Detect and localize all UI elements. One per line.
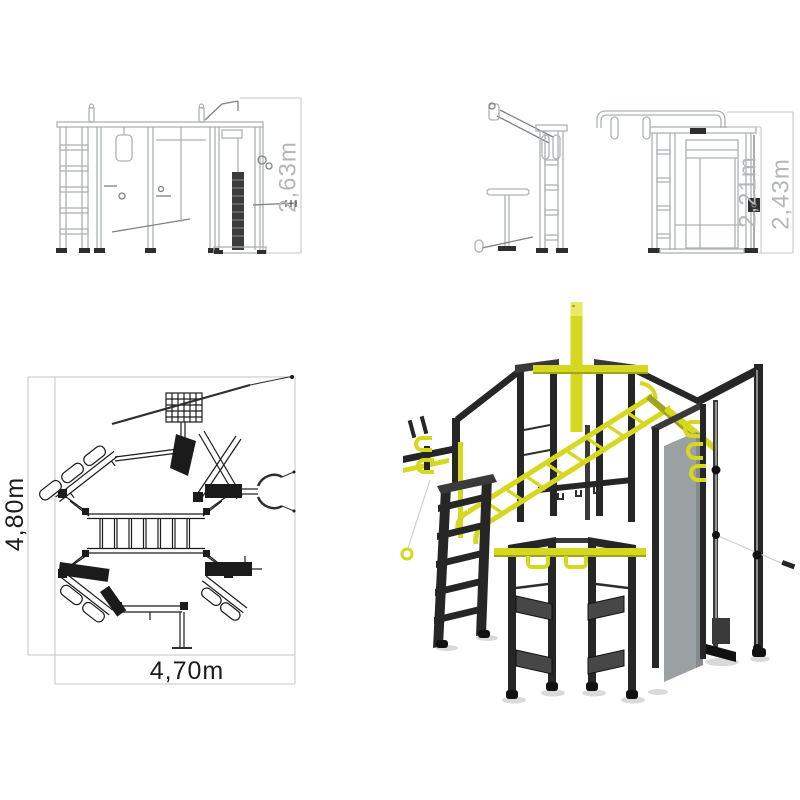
plan-bench-upper-left <box>38 440 122 513</box>
dimension-plan-width: 4,70m <box>55 655 295 685</box>
iso-render-view <box>402 302 795 704</box>
plan-view: 4,80m 4,70m <box>1 375 296 685</box>
cable-handle <box>402 549 412 559</box>
arch-pullup-bar <box>597 111 725 139</box>
ladder-front <box>60 127 88 250</box>
dimension-plan-depth: 4,80m <box>1 377 55 655</box>
dimension-front-height: 2,63m <box>240 98 302 253</box>
display-panel <box>690 128 706 134</box>
technical-drawing-canvas: 2,63m <box>0 0 800 800</box>
side-elevation-view: 2,21m 2,43m <box>475 103 795 253</box>
front-elevation-view: 2,63m <box>56 98 302 254</box>
plan-seat-wedge <box>170 434 196 476</box>
left-ladder-tower <box>433 474 497 648</box>
dimension-label-plan-width: 4,70m <box>150 657 224 685</box>
press-station-side <box>475 103 568 253</box>
plan-bench-lower-right <box>195 556 262 622</box>
dimension-side-inner: 2,21m <box>728 127 762 253</box>
step-platform <box>516 596 552 620</box>
top-posts <box>89 101 238 122</box>
weight-stack <box>232 172 244 250</box>
top-crossbar <box>533 365 648 372</box>
dimension-label-plan-depth: 4,80m <box>1 477 29 551</box>
plan-barbell <box>112 385 250 424</box>
front-towers <box>494 537 646 699</box>
cable-grip <box>781 560 795 569</box>
plan-row-station <box>205 471 296 513</box>
drawing-sheet: 2,63m <box>0 0 800 800</box>
plan-bottom-station <box>114 602 192 648</box>
plan-ladder <box>82 508 210 557</box>
dimension-label-front-height: 2,63m <box>275 141 302 213</box>
dimension-label-side-inner: 2,21m <box>735 156 762 228</box>
plan-bench-lower-left <box>52 562 126 625</box>
step-platform <box>516 650 552 674</box>
center-bay <box>104 127 206 232</box>
front-yellow-bar <box>494 548 646 555</box>
plan-grid-platform <box>112 375 294 476</box>
dimension-label-side-outer: 2,43m <box>768 158 795 230</box>
